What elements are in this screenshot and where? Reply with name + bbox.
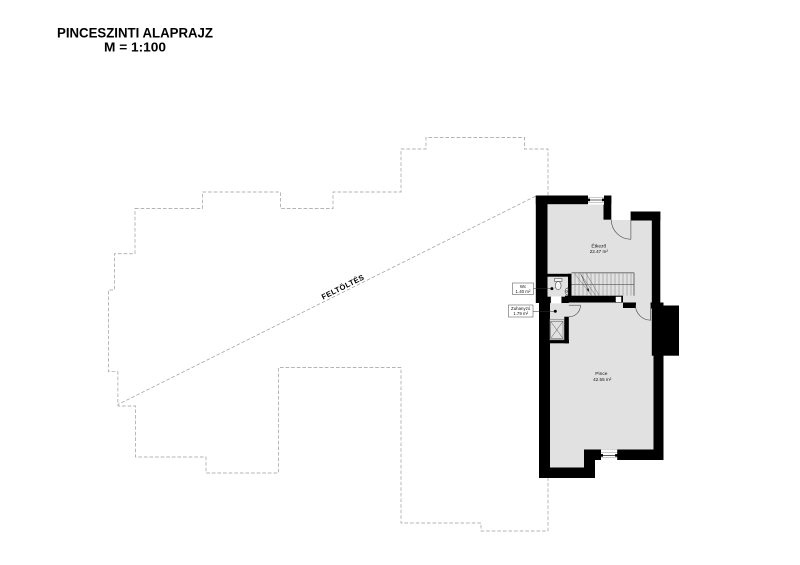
svg-text:PINCESZINTI ALAPRAJZ: PINCESZINTI ALAPRAJZ [57, 25, 213, 40]
svg-text:1.79 m²: 1.79 m² [513, 311, 528, 316]
svg-text:1.40 m²: 1.40 m² [516, 289, 531, 294]
svg-text:42.55 m²: 42.55 m² [593, 377, 612, 382]
svg-text:22.47 m²: 22.47 m² [590, 249, 609, 254]
svg-text:M = 1:100: M = 1:100 [104, 40, 166, 55]
